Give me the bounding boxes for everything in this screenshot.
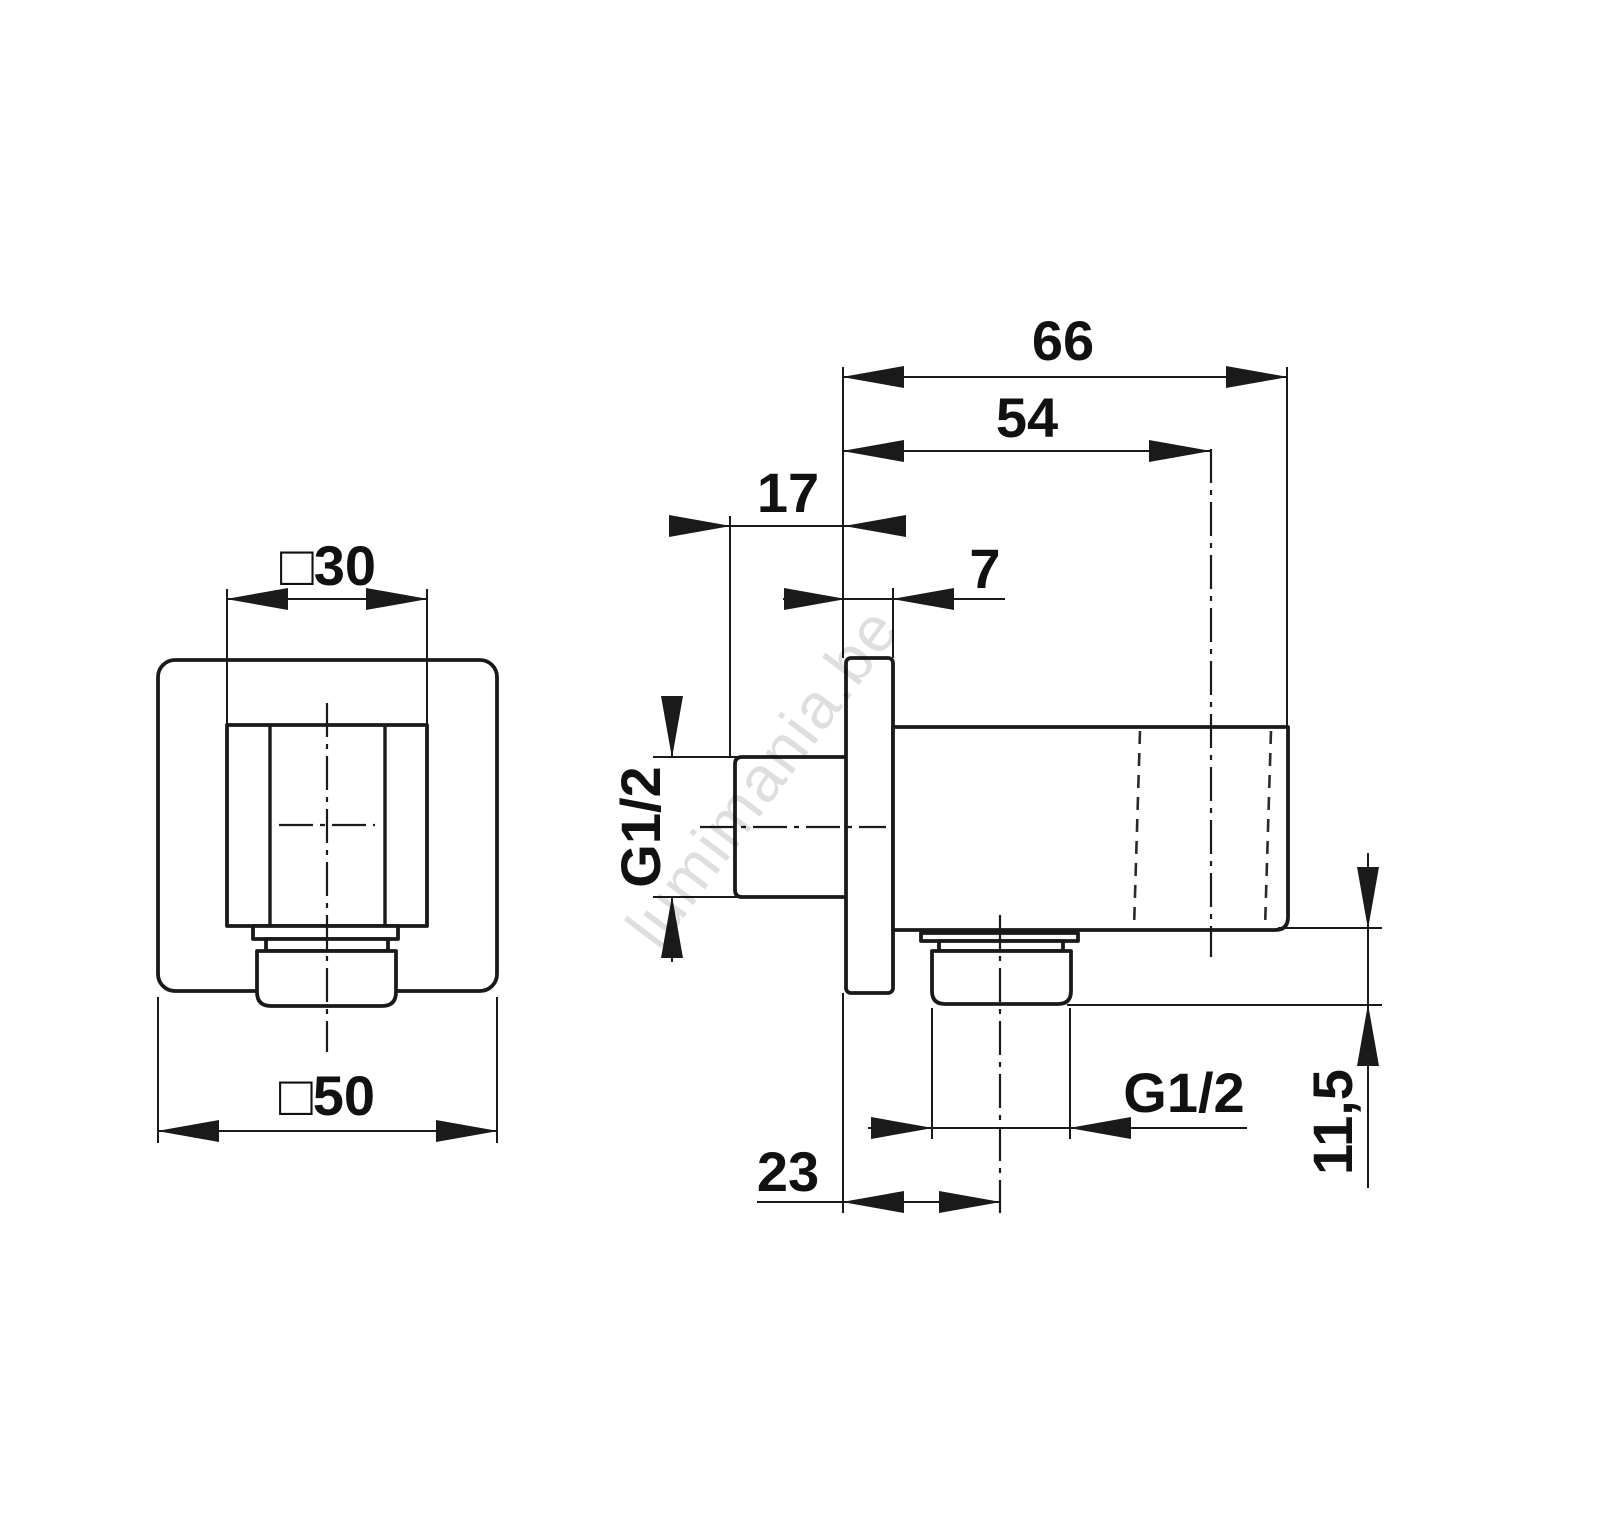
dimension-17: 17	[670, 461, 905, 526]
front-view: □30 □50	[158, 534, 497, 1143]
dimension-front-50: □50	[158, 997, 497, 1143]
total-length-label: 66	[1032, 309, 1094, 372]
dimension-11-5: 11,5	[1301, 853, 1368, 1188]
front-boss-width-label: □30	[280, 534, 376, 597]
dimension-54: 54	[843, 386, 1210, 451]
axis-offset-label: 23	[757, 1140, 819, 1203]
nipple-length-label: 17	[757, 461, 819, 524]
nut-height-label: 11,5	[1301, 1069, 1364, 1175]
side-view: 66 54 17 7 G1/2	[609, 309, 1382, 1213]
dimension-outlet-thread: G1/2	[868, 1061, 1247, 1128]
technical-drawing: □30 □50	[0, 0, 1600, 1515]
front-plate-width-label: □50	[279, 1064, 375, 1127]
side-outlet-nut	[932, 951, 1071, 1004]
drawing-canvas: □30 □50	[0, 0, 1600, 1515]
dimension-66: 66	[843, 309, 1287, 377]
dimension-23: 23	[757, 1140, 1000, 1203]
side-body	[893, 727, 1288, 930]
outlet-thread-label: G1/2	[1123, 1061, 1244, 1124]
front-washer-upper	[253, 926, 398, 939]
length-to-axis-label: 54	[996, 386, 1058, 449]
plate-thickness-label: 7	[969, 537, 1000, 600]
